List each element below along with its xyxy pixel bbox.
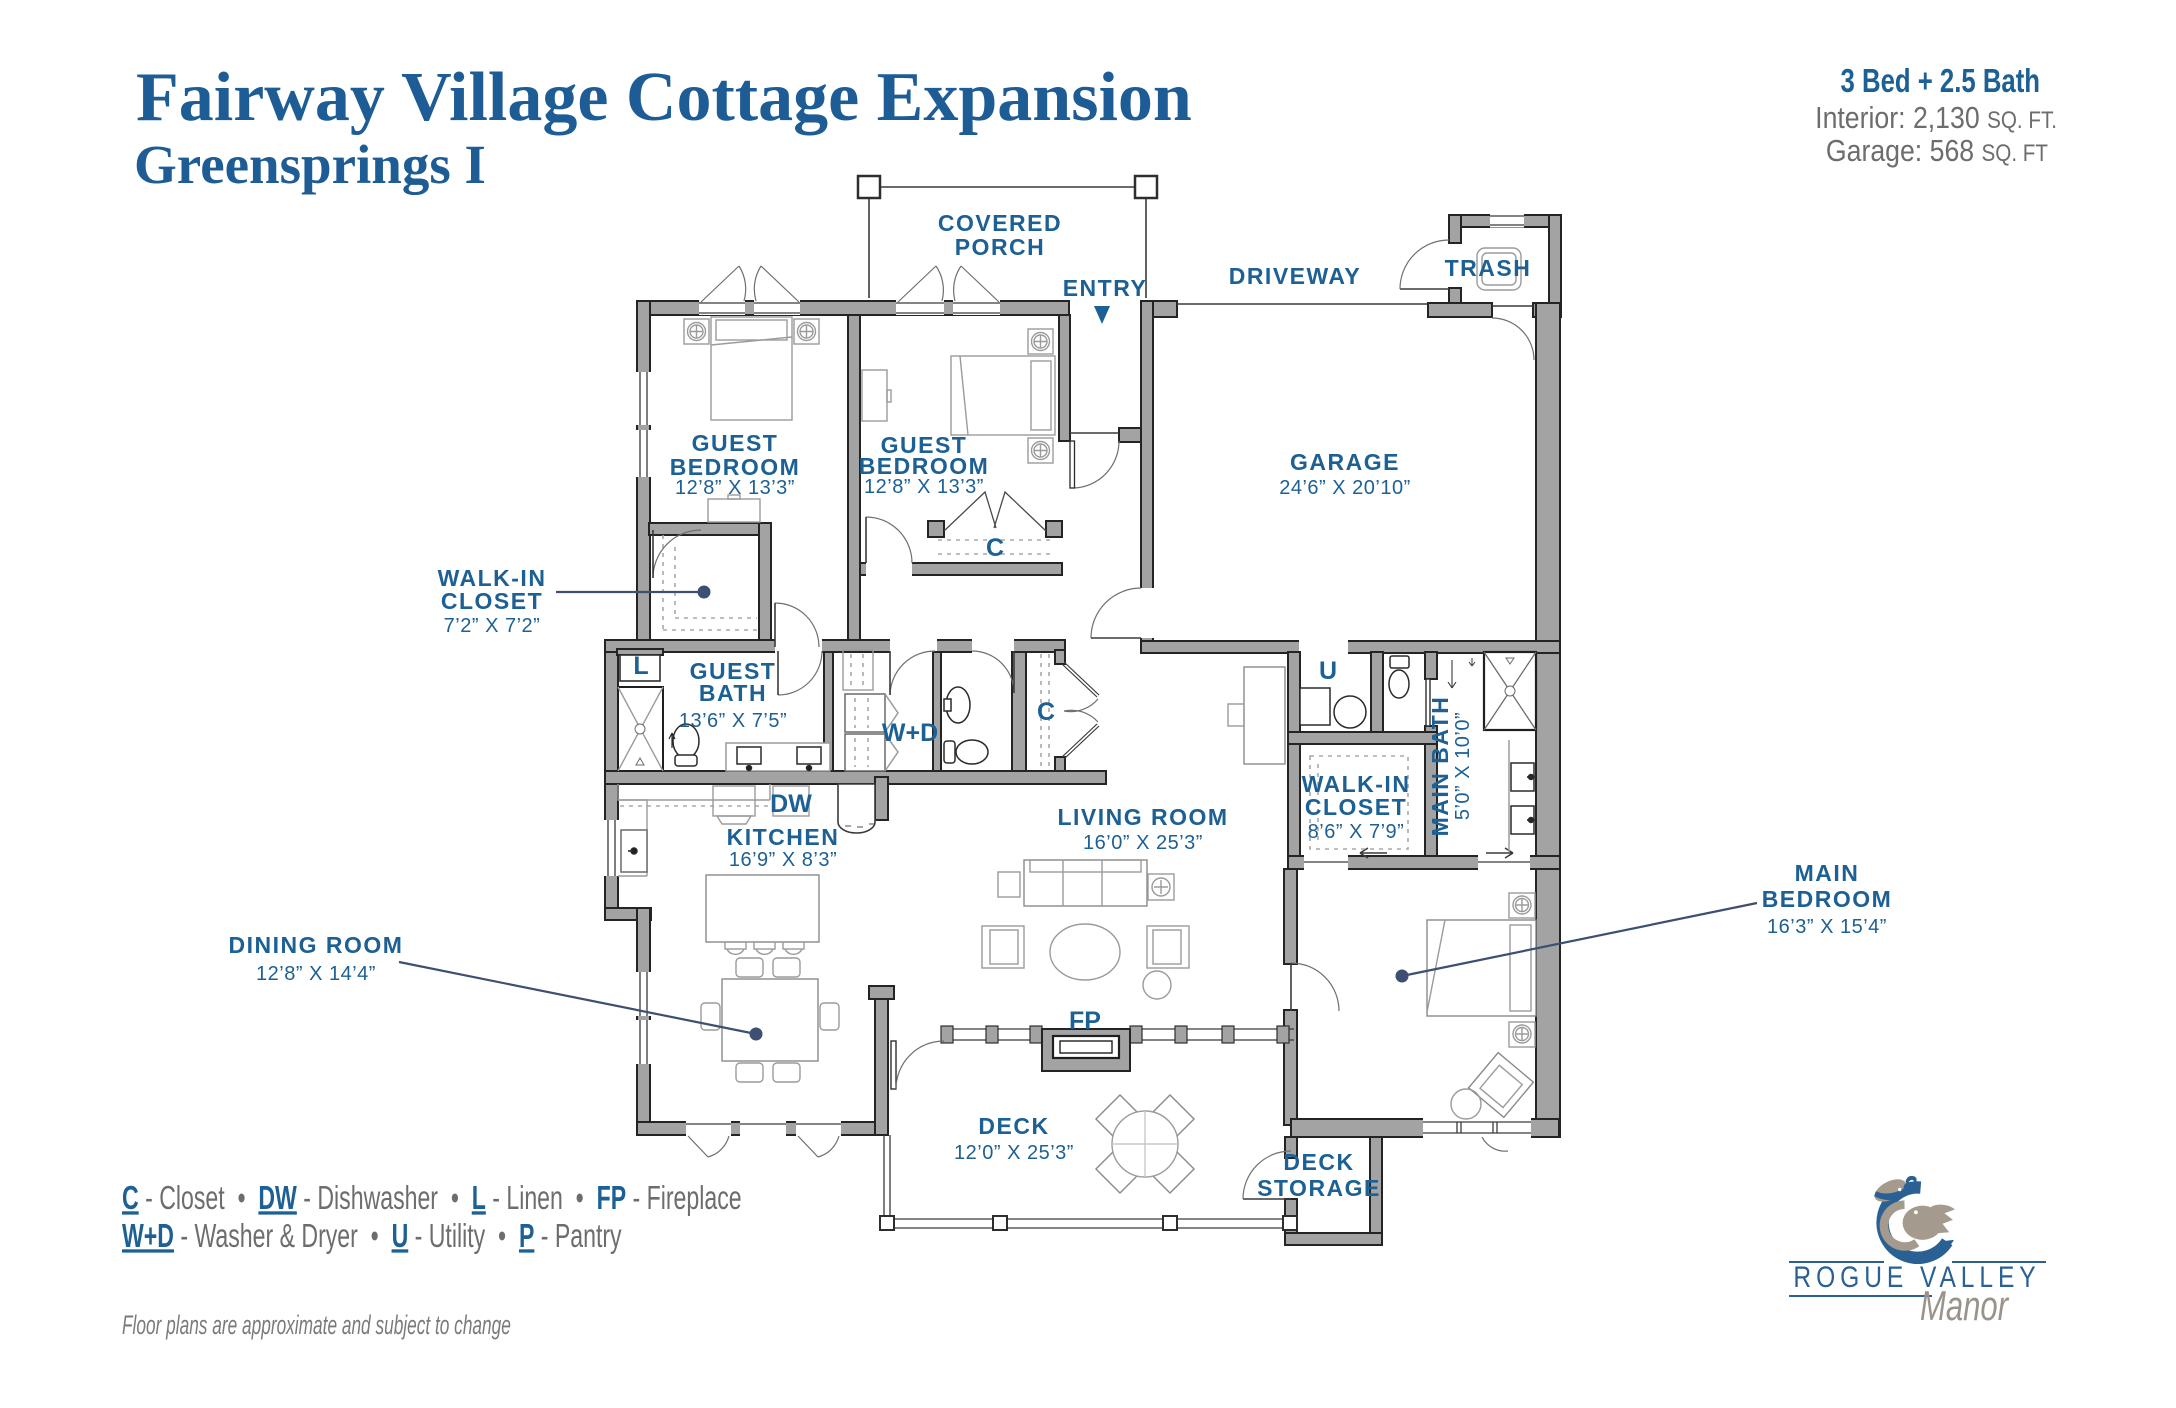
svg-text:12’8” X 14’4”: 12’8” X 14’4”	[256, 963, 376, 985]
svg-text:DINING ROOM: DINING ROOM	[229, 932, 404, 958]
svg-text:Fairway Village Cottage Expans: Fairway Village Cottage Expansion	[136, 59, 1192, 136]
svg-text:COVERED: COVERED	[938, 210, 1062, 236]
svg-text:BEDROOM: BEDROOM	[1762, 886, 1893, 912]
svg-text:GUEST: GUEST	[692, 430, 779, 456]
svg-text:16’0” X 25’3”: 16’0” X 25’3”	[1083, 832, 1203, 854]
svg-text:CLOSET: CLOSET	[441, 588, 543, 614]
svg-text:12’8” X 13’3”: 12’8” X 13’3”	[675, 477, 795, 499]
svg-text:DECK: DECK	[1283, 1149, 1354, 1175]
svg-text:Floor plans are approximate an: Floor plans are approximate and subject …	[122, 1309, 511, 1340]
svg-text:Greensprings I: Greensprings I	[134, 134, 486, 195]
svg-text:W+D - Washer & Dryer • U - U: W+D - Washer & Dryer • U - Utility • P -…	[122, 1218, 622, 1255]
svg-text:Interior: 2,130 SQ. FT.: Interior: 2,130 SQ. FT.	[1815, 101, 2057, 135]
svg-text:PORCH: PORCH	[955, 234, 1046, 260]
svg-text:3 Bed + 2.5 Bath: 3 Bed + 2.5 Bath	[1841, 63, 2040, 100]
svg-text:MAIN: MAIN	[1795, 860, 1860, 886]
svg-text:BATH: BATH	[699, 680, 767, 706]
svg-text:KITCHEN: KITCHEN	[727, 824, 840, 850]
svg-text:Garage: 568 SQ. FT: Garage: 568 SQ. FT	[1826, 134, 2048, 168]
svg-text:DRIVEWAY: DRIVEWAY	[1229, 263, 1362, 289]
svg-text:U: U	[1319, 657, 1337, 685]
svg-text:Manor: Manor	[1920, 1282, 2010, 1329]
svg-text:8’6” X 7’9”: 8’6” X 7’9”	[1308, 821, 1405, 843]
svg-text:W+D: W+D	[882, 719, 938, 747]
svg-text:12’8” X 13’3”: 12’8” X 13’3”	[864, 476, 984, 498]
svg-text:C: C	[986, 534, 1004, 562]
svg-text:ENTRY: ENTRY	[1063, 275, 1148, 301]
svg-text:16’3” X 15’4”: 16’3” X 15’4”	[1767, 916, 1887, 938]
svg-text:12’0” X 25’3”: 12’0” X 25’3”	[954, 1142, 1074, 1164]
svg-text:CLOSET: CLOSET	[1305, 794, 1407, 820]
svg-text:DECK: DECK	[978, 1113, 1049, 1139]
svg-text:C - Closet • DW - Dishwasher: C - Closet • DW - Dishwasher • L - Linen…	[122, 1180, 742, 1217]
svg-text:24’6” X 20’10”: 24’6” X 20’10”	[1279, 477, 1411, 499]
svg-text:LIVING ROOM: LIVING ROOM	[1057, 804, 1228, 830]
svg-text:5’0” X 10’0”: 5’0” X 10’0”	[1452, 712, 1474, 820]
svg-text:TRASH: TRASH	[1445, 255, 1532, 281]
svg-text:C: C	[1037, 698, 1055, 726]
svg-text:GARAGE: GARAGE	[1290, 449, 1400, 475]
svg-text:FP: FP	[1069, 1007, 1101, 1035]
svg-text:L: L	[633, 652, 648, 680]
svg-text:MAIN BATH: MAIN BATH	[1427, 696, 1453, 837]
svg-text:16’9” X 8’3”: 16’9” X 8’3”	[729, 849, 837, 871]
svg-text:STORAGE: STORAGE	[1257, 1175, 1381, 1201]
svg-text:DW: DW	[770, 790, 812, 818]
svg-text:7’2” X 7’2”: 7’2” X 7’2”	[444, 615, 541, 637]
svg-text:13’6” X 7’5”: 13’6” X 7’5”	[679, 710, 787, 732]
